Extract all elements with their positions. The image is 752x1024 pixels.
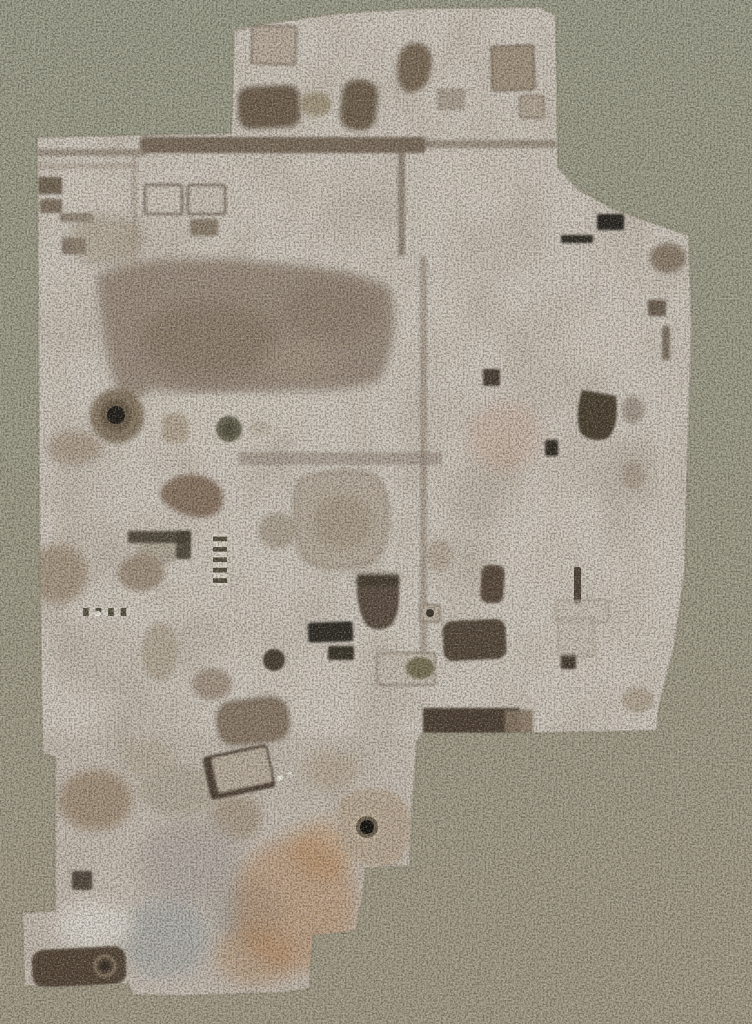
orthophoto-stage <box>0 0 752 1024</box>
excavation-orthophoto <box>0 0 752 1024</box>
grain-light-overlay <box>0 0 752 1024</box>
